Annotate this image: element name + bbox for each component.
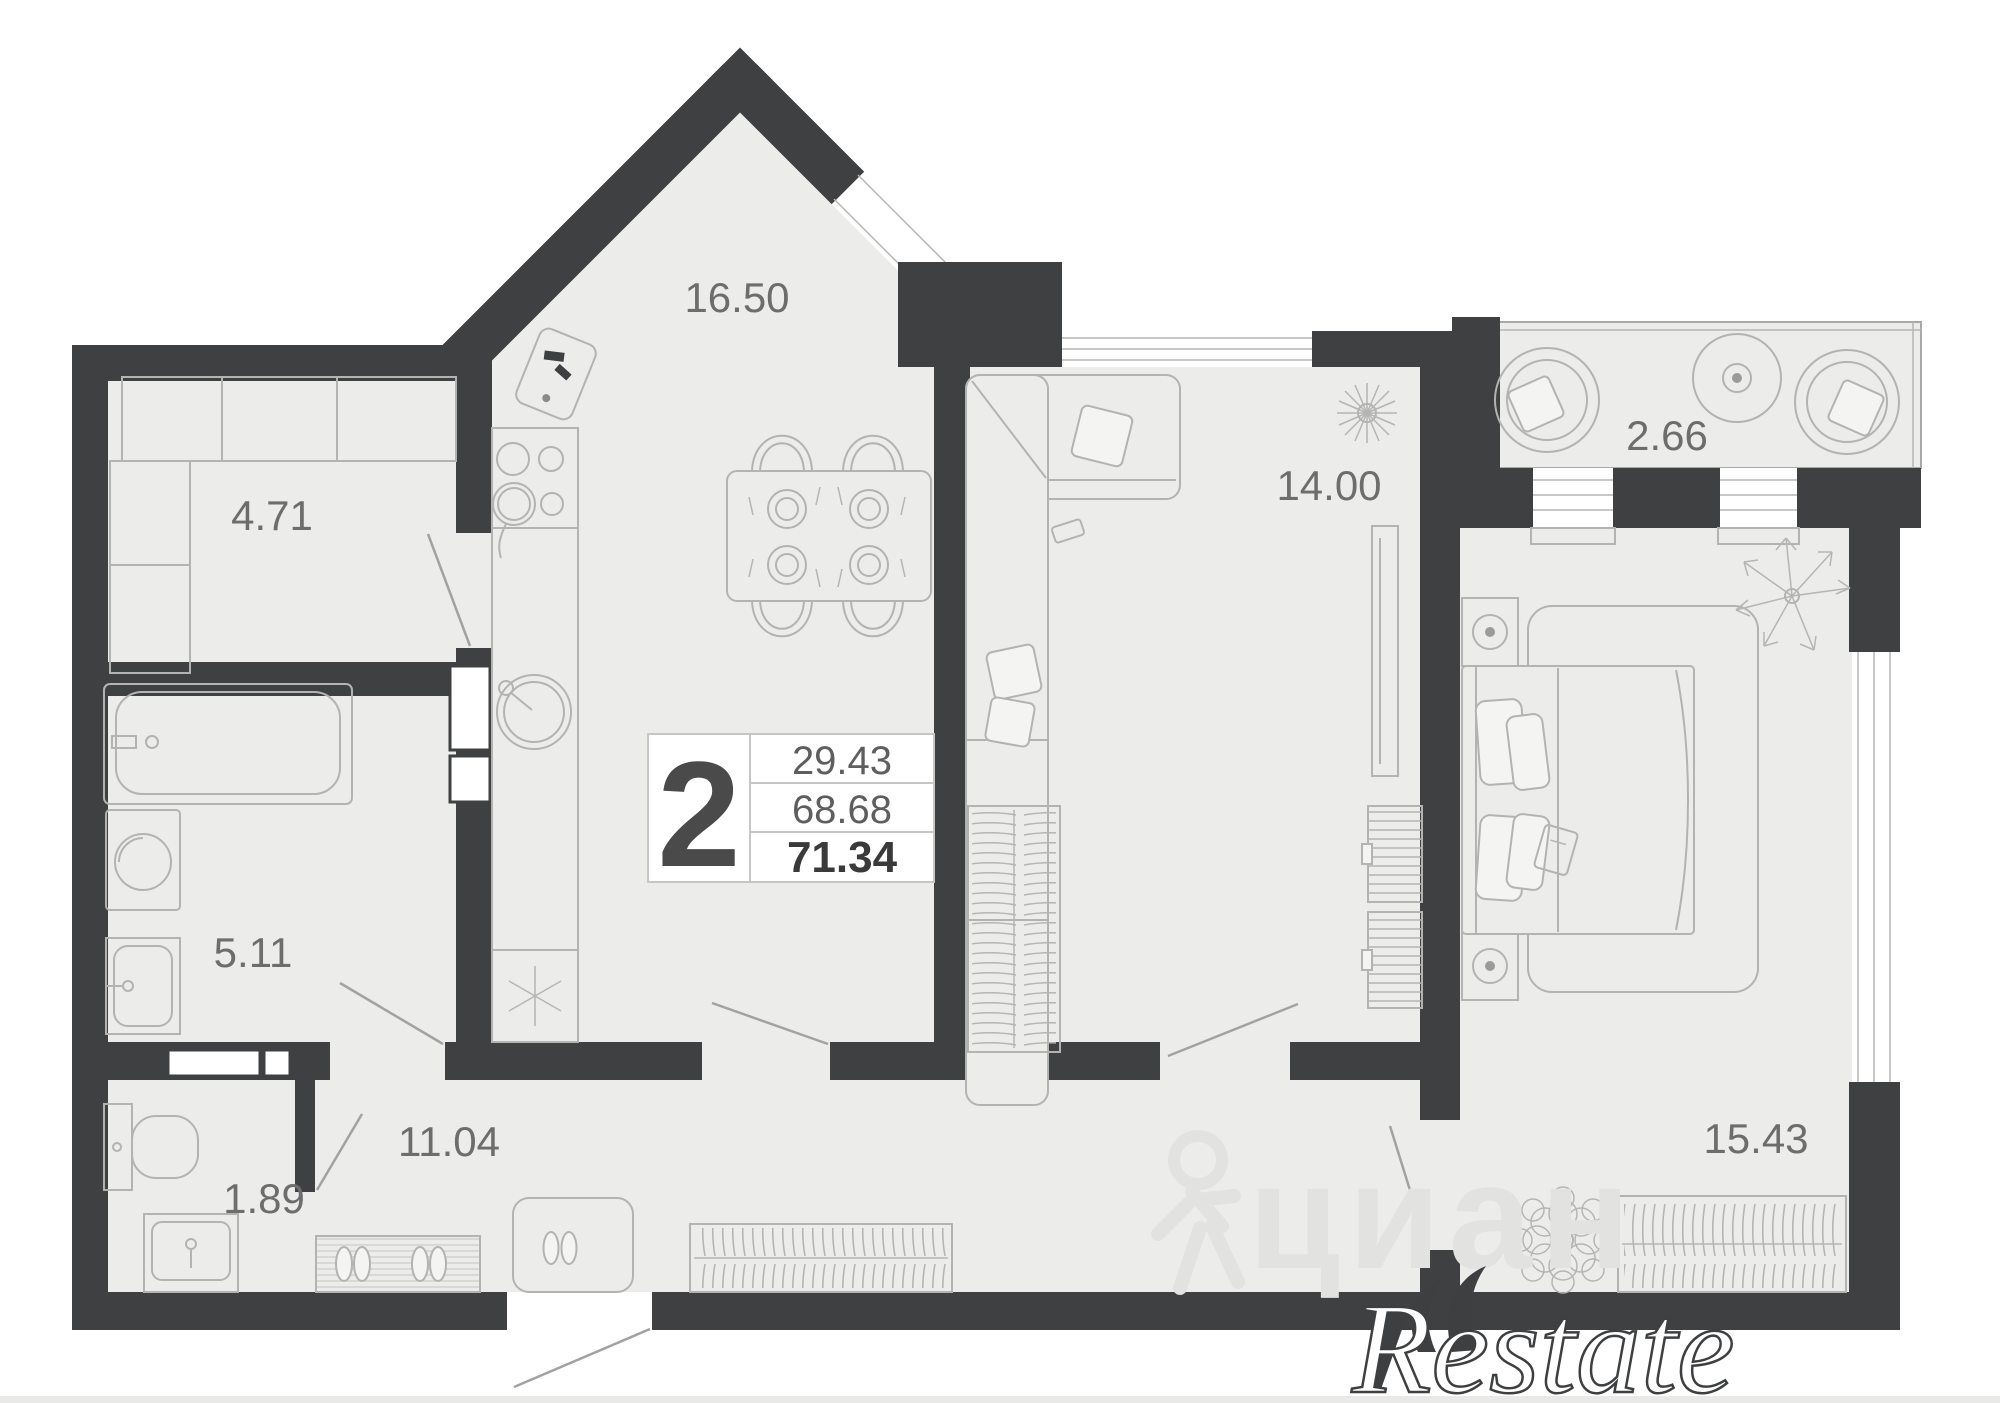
area-value-total: 71.34 bbox=[787, 833, 898, 882]
entrance-door-swing bbox=[514, 1329, 650, 1387]
label-balcony: 2.66 bbox=[1626, 412, 1708, 459]
label-hallway: 11.04 bbox=[398, 1118, 500, 1165]
label-living: 14.00 bbox=[1276, 462, 1381, 509]
plant bbox=[1337, 383, 1397, 443]
label-storage: 4.71 bbox=[231, 492, 313, 539]
watermark-brand-text: Restate bbox=[1351, 1277, 1735, 1403]
watermark-faint-text: циан bbox=[1248, 1132, 1638, 1300]
floorplan-drawing: 2 29.43 68.68 71.34 16.50 4.71 5.11 1.89… bbox=[0, 0, 2000, 1403]
watermark-restate: Restate bbox=[1351, 1266, 1735, 1403]
double-bed bbox=[1462, 666, 1694, 934]
shelf-unit bbox=[1362, 912, 1422, 1008]
area-value-top: 29.43 bbox=[792, 739, 892, 783]
bottom-edge-strip bbox=[0, 1396, 2000, 1403]
rooms-count: 2 bbox=[657, 730, 740, 898]
label-bedroom: 15.43 bbox=[1703, 1115, 1808, 1162]
info-box: 2 29.43 68.68 71.34 bbox=[648, 730, 934, 898]
label-bathroom: 5.11 bbox=[214, 929, 293, 976]
shelf-unit bbox=[1362, 806, 1422, 902]
label-wc: 1.89 bbox=[223, 1175, 305, 1222]
living-wardrobe bbox=[968, 806, 1060, 1052]
shoe-mat bbox=[316, 1236, 480, 1292]
area-value-middle: 68.68 bbox=[792, 788, 892, 832]
label-kitchen-living: 16.50 bbox=[684, 274, 789, 321]
floorplan-page: { "floorplan": { "info_box": { "rooms_co… bbox=[0, 0, 2000, 1403]
hallway-hanger-rack bbox=[690, 1224, 952, 1292]
